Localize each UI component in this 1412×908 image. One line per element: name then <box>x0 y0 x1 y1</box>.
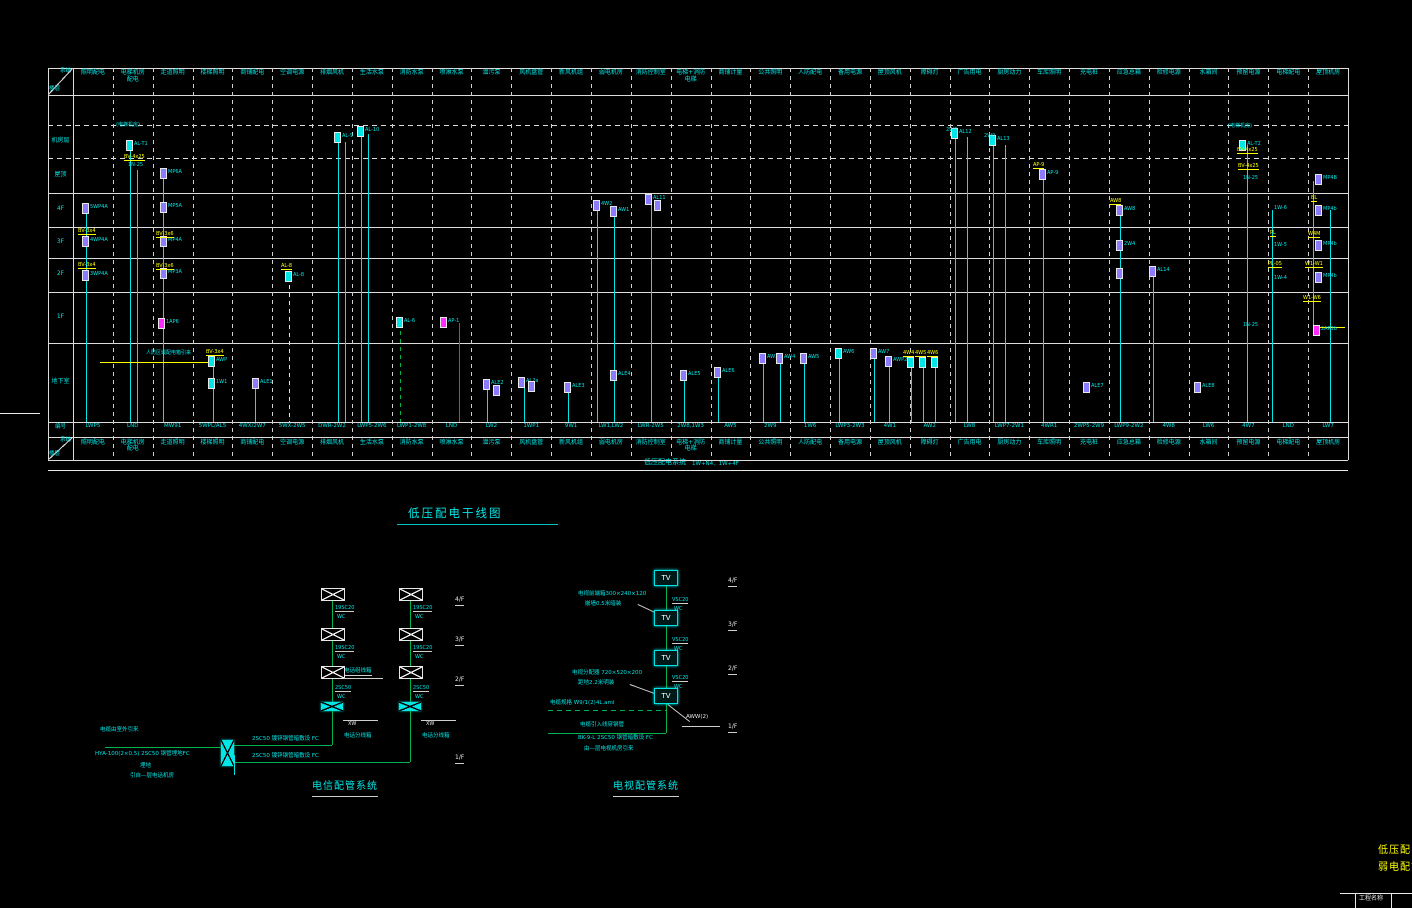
riser-line <box>889 362 890 422</box>
panel-box-label: AL-6 <box>404 319 415 324</box>
title-block-divider-2 <box>1391 893 1392 908</box>
column-header-bottom: 应急总箱 <box>1109 440 1149 446</box>
column-code: LWR-2W5 <box>631 424 671 430</box>
riser-line <box>1247 145 1248 422</box>
column-header: 新风机组 <box>551 70 591 77</box>
tv-headend-box-install-note: 嵌墙0.5米暗装 <box>585 601 621 607</box>
circuit-label: AP-9 <box>1033 163 1044 169</box>
column-code: 2W8,1W3 <box>671 424 711 430</box>
table-column-line <box>232 68 233 460</box>
tv-conduit-size-label: VSC20 <box>672 598 688 604</box>
panel-box-label: 5WP4A <box>90 205 108 210</box>
column-header: 应急总箱 <box>1109 70 1149 77</box>
panel-box <box>776 353 783 364</box>
feeder-line <box>100 362 213 363</box>
column-header-bottom: 车库照明 <box>1029 440 1069 446</box>
annotation-label: 1N-25 <box>128 163 143 168</box>
circuit-label: W1-W6 <box>1303 296 1321 302</box>
panel-box-label: AW6 <box>843 350 854 355</box>
circuit-label: BV-3x6 <box>156 264 174 270</box>
telecom-junction-box <box>221 740 234 766</box>
column-code: LW6 <box>1189 424 1229 430</box>
panel-box-label: ALE7 <box>1091 384 1104 389</box>
edge-tick <box>0 413 40 414</box>
table-column-line <box>989 68 990 460</box>
column-header-bottom: 厨房动力 <box>989 440 1029 446</box>
panel-box <box>593 200 600 211</box>
column-code: 2W9 <box>750 424 790 430</box>
table-row-line <box>48 158 1348 159</box>
table-row-line <box>48 437 1348 438</box>
tv-outlet-box: TV <box>654 570 678 586</box>
telecom-incoming-line <box>105 747 221 748</box>
column-header-bottom: 潜污泵 <box>471 440 511 446</box>
table-row-line <box>48 125 1348 126</box>
panel-box <box>334 132 341 143</box>
riser-line <box>651 200 652 422</box>
panel-box <box>759 353 766 364</box>
panel-box-label: AW1 <box>618 208 629 213</box>
telecom-conduit-size-label: 19SC20 <box>335 646 354 652</box>
column-header-bottom: 备用电源 <box>830 440 870 446</box>
panel-box-label: AL-10 <box>365 128 379 133</box>
column-header: 生活水泵 <box>352 70 392 77</box>
table-column-line <box>392 68 393 460</box>
panel-box-label: AL-T1 <box>134 142 148 147</box>
column-header: 公共照明 <box>750 70 790 77</box>
annotation-label: 人防区域配电箱引来 <box>146 351 191 356</box>
column-code: LND <box>1268 424 1308 430</box>
table-column-line <box>352 68 353 460</box>
column-header-bottom: 屋顶机房 <box>1308 440 1348 446</box>
panel-box <box>1149 266 1156 277</box>
telecom-xw-label: XW <box>426 722 434 727</box>
telecom-conduit-mount-label: WC <box>415 615 423 620</box>
column-code: LWP5 <box>73 424 113 430</box>
panel-box <box>714 367 721 378</box>
code-row-label: 编号 <box>48 425 73 431</box>
column-header: 消防控制室 <box>631 70 671 77</box>
panel-box-label: MP4b <box>1323 207 1337 212</box>
table-column-line <box>790 68 791 460</box>
telecom-conduit-size-label: 19SC20 <box>413 646 432 652</box>
tv-floor-label: 1/F <box>728 724 737 733</box>
column-header: 潜污泵 <box>471 70 511 77</box>
column-header: 障碍灯 <box>910 70 950 77</box>
panel-box-label: 4WP4A <box>90 238 108 243</box>
telecom-conduit-size-label: 19SC20 <box>413 606 432 612</box>
riser-line <box>839 354 840 422</box>
column-header: 排烟风机 <box>312 70 352 77</box>
tv-incoming-line <box>548 733 666 734</box>
riser-line <box>614 212 615 422</box>
table-column-line <box>193 68 194 460</box>
panel-box <box>493 385 500 396</box>
circuit-label: BV-4x25 <box>124 155 145 161</box>
panel-box-label: AW7 <box>878 350 889 355</box>
column-header-bottom: 消防控制室 <box>631 440 671 446</box>
circuit-label: BV-3x4 <box>206 350 224 356</box>
table-column-line <box>1109 68 1110 460</box>
column-header: 弱电机房 <box>591 70 631 77</box>
column-code: LW1,LW2 <box>591 424 631 430</box>
column-header-bottom: 空调电源 <box>272 440 312 446</box>
column-header-bottom: 消防水泵 <box>392 440 432 446</box>
annotation-label: 1N-25 <box>1243 323 1258 328</box>
riser-line <box>130 148 131 422</box>
telecom-conduit-mount-label: WC <box>337 695 345 700</box>
circuit-label: BL <box>1311 196 1317 202</box>
annotation-label: 2W6 <box>946 128 957 133</box>
telecom-mid-note-underline <box>344 678 383 679</box>
riser-line <box>955 133 956 422</box>
column-code: DWR-2W2 <box>312 424 352 430</box>
panel-box-label: ALE4 <box>618 372 631 377</box>
table-column-line <box>750 68 751 460</box>
tv-outlet-box: TV <box>654 650 678 666</box>
table-row-line <box>48 95 1348 96</box>
telecom-leader-line <box>421 720 456 721</box>
panel-box-label: AP-9 <box>1047 171 1058 176</box>
floor-label: 2F <box>48 271 73 277</box>
column-header: 电梯机房 配电 <box>113 70 153 84</box>
telecom-distribution-box <box>399 702 421 711</box>
corner-cell-bottom-label: 楼层 <box>49 87 60 93</box>
panel-box-label: AP-1 <box>448 319 459 324</box>
panel-box <box>645 194 652 205</box>
telecom-conduit-mount-label: WC <box>415 655 423 660</box>
column-header-bottom: 障碍灯 <box>910 440 950 446</box>
panel-box <box>82 236 89 247</box>
panel-box <box>252 378 259 389</box>
panel-box-label: AL-8 <box>293 273 304 278</box>
column-header: 空调电源 <box>272 70 312 77</box>
circuit-label: W4M <box>1308 232 1320 238</box>
column-header-bottom: 走道照明 <box>153 440 193 446</box>
title-block-project-cell: 工程名称 <box>1359 896 1383 903</box>
tv-leader-line-3 <box>667 704 690 722</box>
column-header: 商铺计量 <box>711 70 751 77</box>
circuit-label: PL <box>1270 231 1276 237</box>
panel-box <box>680 370 687 381</box>
riser-line <box>255 384 256 422</box>
panel-box <box>1315 240 1322 251</box>
table-column-line <box>153 68 154 460</box>
telecom-conduit-run-label-1: 2SC50 镀锌钢管暗敷设 FC <box>252 736 319 742</box>
column-header: 屋顶风机 <box>870 70 910 77</box>
column-code: LW7 <box>1308 424 1348 430</box>
tv-outlet-box: TV <box>654 610 678 626</box>
tv-headend-box-note: 电视前端箱300×240×120 <box>578 591 646 597</box>
annotation-label: (电梯机房) <box>1228 124 1252 129</box>
tv-floor-label: 4/F <box>728 578 737 587</box>
riser-line <box>597 206 598 422</box>
panel-box <box>396 317 403 328</box>
annotation-label: 2W0 <box>984 134 995 139</box>
riser-line <box>1313 181 1314 325</box>
column-code: 4W8 <box>1149 424 1189 430</box>
tv-conduit-mount-label: WC <box>674 685 682 690</box>
panel-box-label: AW5 <box>808 355 819 360</box>
table-column-line <box>432 68 433 460</box>
riser-line <box>1153 272 1154 422</box>
panel-box <box>1116 205 1123 216</box>
column-header: 备用电源 <box>830 70 870 77</box>
tv-bottom-note-1: 电缆引入线穿钢管 <box>580 722 624 728</box>
column-code: LWP7-2W1 <box>989 424 1029 430</box>
corner-title-line-2: 弱电配管系 <box>1378 862 1412 873</box>
riser-line <box>213 362 214 422</box>
panel-box <box>160 202 167 213</box>
panel-box <box>1315 272 1322 283</box>
panel-box-label: MP5A <box>168 204 182 209</box>
tv-bottom-note-2: BK-9-L 2SC50 钢管暗敷设 FC <box>578 735 653 741</box>
telecom-crossed-box <box>399 628 423 641</box>
table-footer-note: 1W+N4、1W+4F <box>692 461 739 467</box>
corner-cell-top-label: 系统 <box>60 438 71 444</box>
panel-box-label: MP4B <box>1323 176 1337 181</box>
panel-box <box>931 357 938 368</box>
circuit-label: 4W6 <box>927 351 938 357</box>
column-header-bottom: 商铺配电 <box>232 440 272 446</box>
telecom-conduit-size-label: 2SC50 <box>413 686 429 692</box>
panel-box-label: AW8 <box>1124 207 1135 212</box>
panel-box <box>158 318 165 329</box>
column-header: 预留电源 <box>1228 70 1268 77</box>
table-row-line <box>48 460 1348 461</box>
tv-splitter-install-note: 距地2.2米明装 <box>578 680 614 686</box>
corner-cell-top-label: 系统 <box>60 69 71 75</box>
column-header-bottom: 风机盘管 <box>511 440 551 446</box>
title-block-divider-1 <box>1355 893 1356 908</box>
column-header-bottom: 电梯机房 配电 <box>113 440 153 453</box>
panel-box-label: 2W4 <box>1124 242 1135 247</box>
panel-box <box>564 382 571 393</box>
circuit-label: BV-3x4 <box>78 229 96 235</box>
panel-box <box>1116 240 1123 251</box>
table-row-line <box>48 258 1348 259</box>
column-header-bottom: 弱电机房 <box>591 440 631 446</box>
annotation-label: 1W-5 <box>1274 243 1287 248</box>
corner-cell-bottom-label: 楼层 <box>49 452 60 458</box>
riser-line <box>967 137 968 422</box>
column-header-bottom: 新风机组 <box>551 440 591 446</box>
column-code: MW91 <box>153 424 193 430</box>
column-header-bottom: 检修电源 <box>1149 440 1189 446</box>
column-header-bottom: 楼梯照明 <box>193 440 233 446</box>
panel-box <box>483 379 490 390</box>
table-column-line <box>272 68 273 460</box>
table-row-line <box>48 227 1348 228</box>
tv-floor-label: 2/F <box>728 666 737 675</box>
panel-box <box>82 270 89 281</box>
column-header-bottom: 商铺计量 <box>711 440 751 446</box>
panel-box-label: AL13 <box>997 137 1010 142</box>
column-header-bottom: 人防配电 <box>790 440 830 446</box>
telecom-conduit-mount-label: WC <box>415 695 423 700</box>
floor-label: 屋顶 <box>48 172 73 178</box>
telecom-run-line-1 <box>234 745 332 746</box>
telecom-source-note-2: HYA-100(2×0.5) 2SC50 钢管埋地FC <box>95 751 190 757</box>
telecom-floor-label: 3/F <box>455 637 464 646</box>
panel-box-label: 3WP4A <box>90 272 108 277</box>
telecom-floor-label: 4/F <box>455 597 464 606</box>
column-code: LW2 <box>471 424 511 430</box>
telecom-distribution-box <box>321 702 343 711</box>
tv-title: 电视配管系统 <box>613 781 679 797</box>
table-column-line <box>312 68 313 460</box>
riser-line <box>487 385 488 422</box>
panel-box <box>835 348 842 359</box>
telecom-crossed-box <box>321 588 345 601</box>
table-column-line <box>1069 68 1070 460</box>
panel-box-label: AWP <box>216 358 227 363</box>
telecom-crossed-box <box>399 588 423 601</box>
riser-line <box>289 277 290 422</box>
riser-line <box>400 323 401 422</box>
table-column-line <box>711 68 712 460</box>
column-header-bottom: 排烟风机 <box>312 440 352 446</box>
column-header: 楼梯照明 <box>193 70 233 77</box>
column-code: AW2 <box>910 424 950 430</box>
column-header: 走道照明 <box>153 70 193 77</box>
annotation-label: 1W-6 <box>1274 206 1287 211</box>
riser-line <box>874 354 875 422</box>
column-code: 2WP5-2W9 <box>1069 424 1109 430</box>
column-header-bottom: 公共照明 <box>750 440 790 446</box>
panel-box <box>1313 325 1320 336</box>
table-column-line <box>113 68 114 460</box>
column-code: LWP1-2W8 <box>392 424 432 430</box>
riser-line <box>137 170 138 422</box>
column-code: LWP9-2W2 <box>1109 424 1149 430</box>
tv-floor-label: 3/F <box>728 622 737 631</box>
telecom-junction-drop <box>234 755 235 775</box>
panel-box <box>1315 205 1322 216</box>
table-column-line <box>511 68 512 460</box>
floor-label: 4F <box>48 206 73 212</box>
column-code: 4W1 <box>870 424 910 430</box>
annotation-label: 1W-4 <box>1274 276 1287 281</box>
panel-box <box>1194 382 1201 393</box>
tv-leader-baseline <box>682 726 720 727</box>
panel-box <box>126 140 133 151</box>
telecom-floor-label: 1/F <box>455 755 464 764</box>
table-column-line <box>830 68 831 460</box>
panel-box-label: AWP2 <box>893 358 907 363</box>
telecom-source-note-4: 引自—层电话机房 <box>130 773 174 779</box>
telecom-riser-tail <box>410 711 411 762</box>
table-column-line <box>1149 68 1150 460</box>
panel-box <box>907 357 914 368</box>
panel-box <box>285 271 292 282</box>
panel-box-label: AW4 <box>784 355 795 360</box>
circuit-label: BV-4x25 <box>1238 164 1259 170</box>
tv-conduit-mount-label: WC <box>674 607 682 612</box>
column-code: LWP3-2W3 <box>830 424 870 430</box>
table-column-line <box>1189 68 1190 460</box>
column-header: 车库照明 <box>1029 70 1069 77</box>
tv-splitter-box-note: 电视分配器 720×520×200 <box>572 670 642 676</box>
telecom-conduit-size-label: 2SC50 <box>335 686 351 692</box>
circuit-label: PL-05 <box>1268 262 1282 268</box>
column-code: 5WX-2W5 <box>272 424 312 430</box>
column-code: LW8 <box>950 424 990 430</box>
table-column-line <box>471 68 472 460</box>
tv-dashed-cable-line <box>548 710 666 711</box>
circuit-label: BV-3x4 <box>78 263 96 269</box>
column-code: 4W7 <box>1228 424 1268 430</box>
telecom-conduit-mount-label: WC <box>337 615 345 620</box>
column-header: 商铺配电 <box>232 70 272 77</box>
panel-box <box>610 206 617 217</box>
riser-line <box>568 388 569 422</box>
riser-line <box>368 134 369 422</box>
panel-box <box>1039 169 1046 180</box>
panel-box <box>1083 382 1090 393</box>
column-code: 4WR1 <box>1029 424 1069 430</box>
telecom-conduit-run-label-2: 2SC50 镀锌钢管暗敷设 FC <box>252 753 319 759</box>
riser-line <box>345 142 346 422</box>
panel-box <box>208 356 215 367</box>
column-code: 9W1 <box>551 424 591 430</box>
column-header: 消防水泵 <box>392 70 432 77</box>
tv-conduit-size-label: VSC20 <box>672 676 688 682</box>
floor-label: 机房层 <box>48 138 73 144</box>
panel-box-label: MP4A <box>168 238 182 243</box>
title-block-top-line <box>1340 893 1412 894</box>
table-column-line <box>671 68 672 460</box>
floor-column-divider <box>73 68 74 460</box>
panel-box <box>208 378 215 389</box>
floor-label: 地下室 <box>48 379 73 385</box>
panel-box <box>870 348 877 359</box>
tv-leader-label: AWW(2) <box>686 714 708 720</box>
panel-box <box>82 203 89 214</box>
column-header: 风机盘管 <box>511 70 551 77</box>
panel-box-label: ALE6 <box>722 369 735 374</box>
cad-canvas[interactable]: 低压配电干线图 低压配电系统 1W+N4、1W+4F 电缆由室外引来 HYA-1… <box>0 0 1412 908</box>
telecom-mid-note: 电话组线箱 <box>344 668 372 676</box>
column-header-bottom: 屋顶风机 <box>870 440 910 446</box>
annotation-label: 1N-25 <box>1243 176 1258 181</box>
riser-line <box>935 363 936 422</box>
column-code: LND <box>432 424 472 430</box>
main-title-underline <box>397 524 558 525</box>
panel-box-label: MP6A <box>168 170 182 175</box>
tv-conduit-mount-label: WC <box>674 647 682 652</box>
telecom-crossed-box <box>321 666 345 679</box>
tv-cable-spec-label: 电缆规格 W9/1(2)4L.aml <box>550 700 614 706</box>
table-column-line <box>551 68 552 460</box>
telecom-crossed-box <box>321 628 345 641</box>
column-header: 电梯+消防 电梯 <box>671 70 711 84</box>
riser-line <box>763 359 764 422</box>
column-header-bottom: 电梯配电 <box>1268 440 1308 446</box>
riser-line <box>718 373 719 422</box>
table-column-line <box>870 68 871 460</box>
telecom-conduit-mount-label: WC <box>337 655 345 660</box>
riser-line <box>1272 210 1273 422</box>
panel-box-label: MP3A <box>168 270 182 275</box>
telecom-crossed-box <box>399 666 423 679</box>
telecom-leader-line <box>343 720 378 721</box>
column-code: 1W6 <box>790 424 830 430</box>
column-code: 5WPL/AL5 <box>193 424 233 430</box>
column-code: 1WP1 <box>511 424 551 430</box>
panel-box-label: ALE1 <box>260 380 273 385</box>
corner-title-line-1: 低压配电干 <box>1378 845 1412 856</box>
